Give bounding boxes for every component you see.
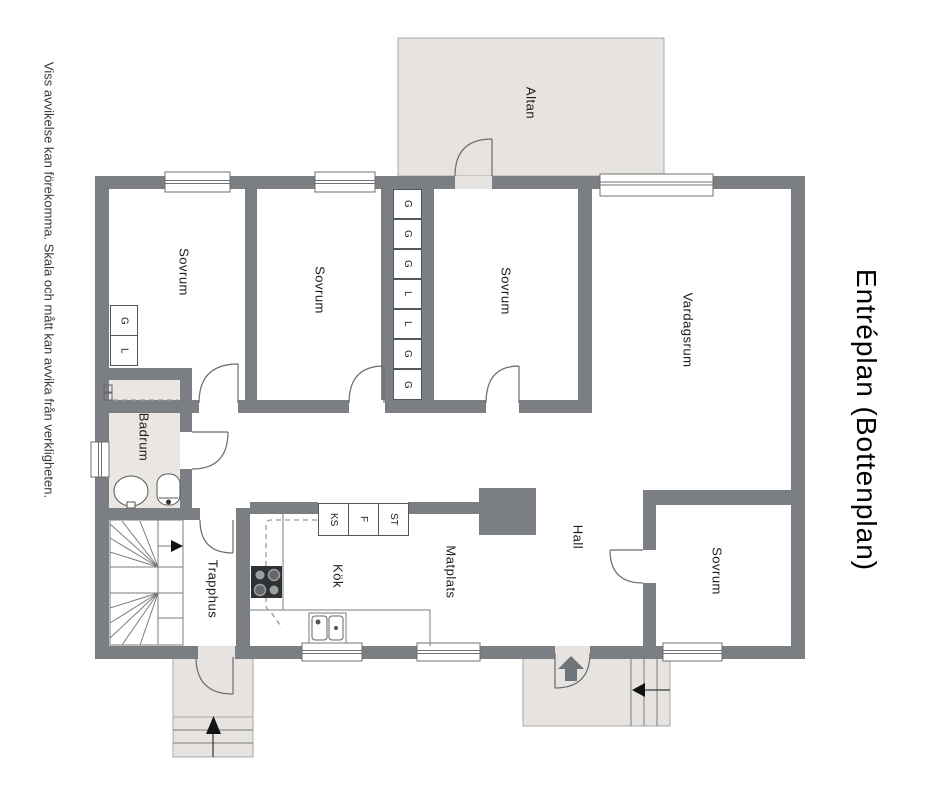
wall-exterior-left bbox=[95, 176, 109, 659]
wall-kok-top-right bbox=[408, 502, 479, 514]
disclaimer-text: Viss avvikelse kan förekomma. Skala och … bbox=[42, 62, 57, 498]
door-sovrum1 bbox=[199, 364, 238, 403]
kitchen-unit-label: ST bbox=[388, 513, 399, 526]
closet-cell: G bbox=[393, 219, 422, 249]
window-vardagsrum bbox=[600, 174, 713, 196]
closet-cell: G bbox=[393, 249, 422, 279]
kitchen-unit-label: F bbox=[358, 516, 369, 522]
floorplan-drawing bbox=[0, 0, 928, 800]
stove-icon bbox=[251, 566, 282, 598]
room-label-sovrum2: Sovrum bbox=[313, 266, 328, 314]
wall-sovrum3-vardagsrum bbox=[578, 189, 592, 413]
wall-chimney-block bbox=[479, 488, 536, 535]
closet-cell-label: G bbox=[402, 230, 413, 238]
kitchen-unit-f: F bbox=[348, 503, 379, 536]
opening-sovrum1-door bbox=[199, 400, 238, 413]
opening-sovrum4-door bbox=[643, 550, 656, 583]
opening-entrance-door bbox=[555, 646, 590, 659]
left-porch bbox=[173, 657, 253, 717]
closet-cell: L bbox=[393, 309, 422, 339]
opening-sovrum3-door bbox=[486, 400, 519, 413]
wardrobe-cell: L bbox=[110, 335, 138, 366]
closet-cell-label: G bbox=[402, 200, 413, 208]
room-label-sovrum4: Sovrum bbox=[710, 547, 725, 595]
wall-badrum-bottom bbox=[109, 508, 200, 520]
window-kok bbox=[302, 643, 362, 661]
wall-sovrum1-sovrum2 bbox=[245, 189, 257, 400]
window-badrum bbox=[91, 442, 109, 477]
opening-left-porch-door bbox=[198, 646, 235, 659]
closet-cell-label: L bbox=[402, 321, 413, 327]
room-label-matplats: Matplats bbox=[444, 545, 459, 598]
kitchen-unit-st: ST bbox=[378, 503, 409, 536]
kitchen-unit-label: KS bbox=[328, 513, 339, 526]
toilet-icon bbox=[157, 474, 180, 505]
sink-icon bbox=[309, 613, 346, 643]
page-title: Entréplan (Bottenplan) bbox=[850, 269, 882, 571]
wall-closet-left bbox=[381, 189, 393, 400]
kitchen-unit-ks: KS bbox=[318, 503, 349, 536]
floorplan-page: G G G L L G G G L KS F ST Altan Sovrum S… bbox=[0, 0, 928, 800]
closet-cell: G bbox=[393, 369, 422, 400]
closet-cell-label: G bbox=[402, 260, 413, 268]
room-label-badrum: Badrum bbox=[137, 413, 152, 462]
door-badrum bbox=[192, 432, 228, 469]
opening-trapphus-door bbox=[200, 508, 233, 520]
room-label-sovrum1: Sovrum bbox=[177, 248, 192, 296]
closet-cell-label: G bbox=[402, 381, 413, 389]
wall-trapphus-kok bbox=[236, 508, 250, 646]
window-sovrum1 bbox=[165, 172, 230, 192]
closet-cell: G bbox=[393, 339, 422, 369]
room-label-altan: Altan bbox=[524, 87, 539, 119]
door-sovrum2 bbox=[349, 366, 384, 403]
wardrobe-cell-label: G bbox=[119, 317, 130, 325]
staircase bbox=[110, 520, 183, 645]
wall-badrum-top bbox=[109, 368, 192, 380]
closet-cell: L bbox=[393, 279, 422, 309]
door-trapphus bbox=[200, 520, 233, 553]
wall-kok-top-left bbox=[250, 502, 318, 514]
opening-sovrum2-door bbox=[349, 400, 385, 413]
room-label-hall: Hall bbox=[571, 525, 586, 549]
wardrobe-cell-label: L bbox=[119, 348, 130, 354]
room-label-sovrum3: Sovrum bbox=[499, 267, 514, 315]
window-sovrum4 bbox=[663, 643, 722, 661]
wall-closet-right bbox=[422, 189, 434, 400]
room-label-vardagsrum: Vardagsrum bbox=[681, 293, 696, 368]
closet-cell-label: L bbox=[402, 291, 413, 297]
room-label-trapphus: Trapphus bbox=[206, 560, 221, 618]
window-matplats bbox=[417, 643, 480, 661]
wardrobe-cell: G bbox=[110, 305, 138, 336]
opening-altan-door bbox=[455, 176, 492, 189]
door-sovrum4 bbox=[610, 550, 643, 583]
door-sovrum3 bbox=[486, 366, 519, 403]
opening-badrum-door bbox=[180, 432, 192, 469]
room-label-kok: Kök bbox=[331, 564, 346, 588]
closet-cell: G bbox=[393, 189, 422, 219]
closet-cell-label: G bbox=[402, 350, 413, 358]
wall-exterior-right bbox=[791, 176, 805, 659]
window-sovrum2 bbox=[315, 172, 375, 192]
wall-sovrum4-top bbox=[643, 490, 791, 505]
